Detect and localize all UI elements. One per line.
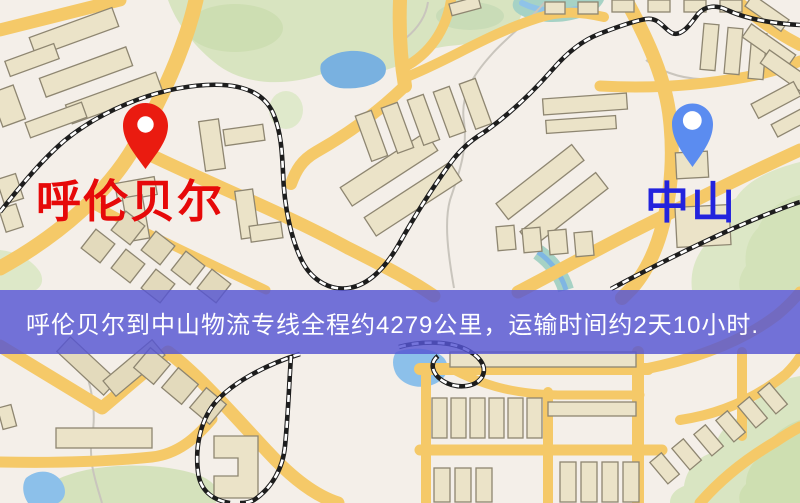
map-container: 呼伦贝尔 中山 呼伦贝尔到中山物流专线全程约4279公里，运输时间约2天10小时… (0, 0, 800, 503)
route-info-banner: 呼伦贝尔到中山物流专线全程约4279公里，运输时间约2天10小时. (0, 290, 800, 354)
origin-place-label: 呼伦贝尔 (36, 179, 224, 224)
map-background (0, 0, 800, 503)
route-info-text: 呼伦贝尔到中山物流专线全程约4279公里，运输时间约2天10小时. (0, 305, 759, 340)
destination-place-label: 中山 (645, 182, 737, 226)
